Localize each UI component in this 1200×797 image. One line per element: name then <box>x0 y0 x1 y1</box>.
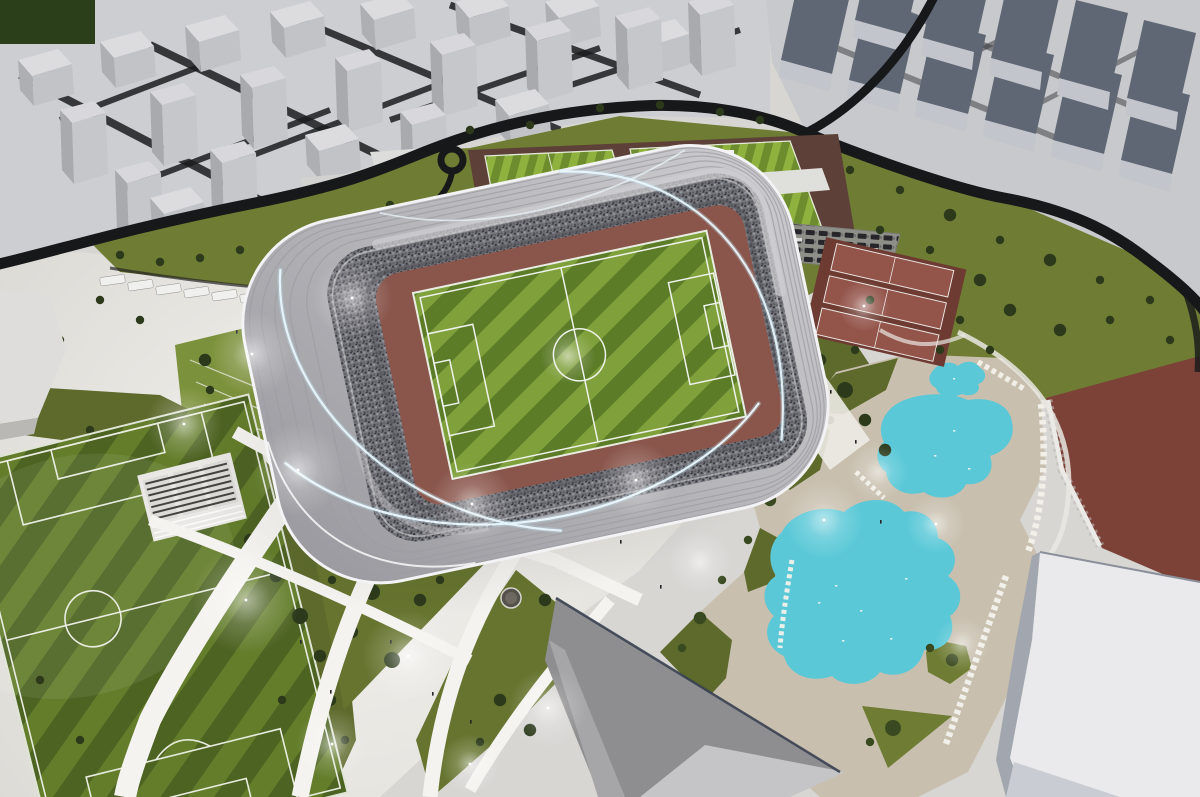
dark-green-corner <box>0 0 95 44</box>
stadium-masterplan-render <box>0 0 1200 797</box>
render-image <box>0 0 1200 797</box>
hall-roof <box>1010 552 1200 797</box>
